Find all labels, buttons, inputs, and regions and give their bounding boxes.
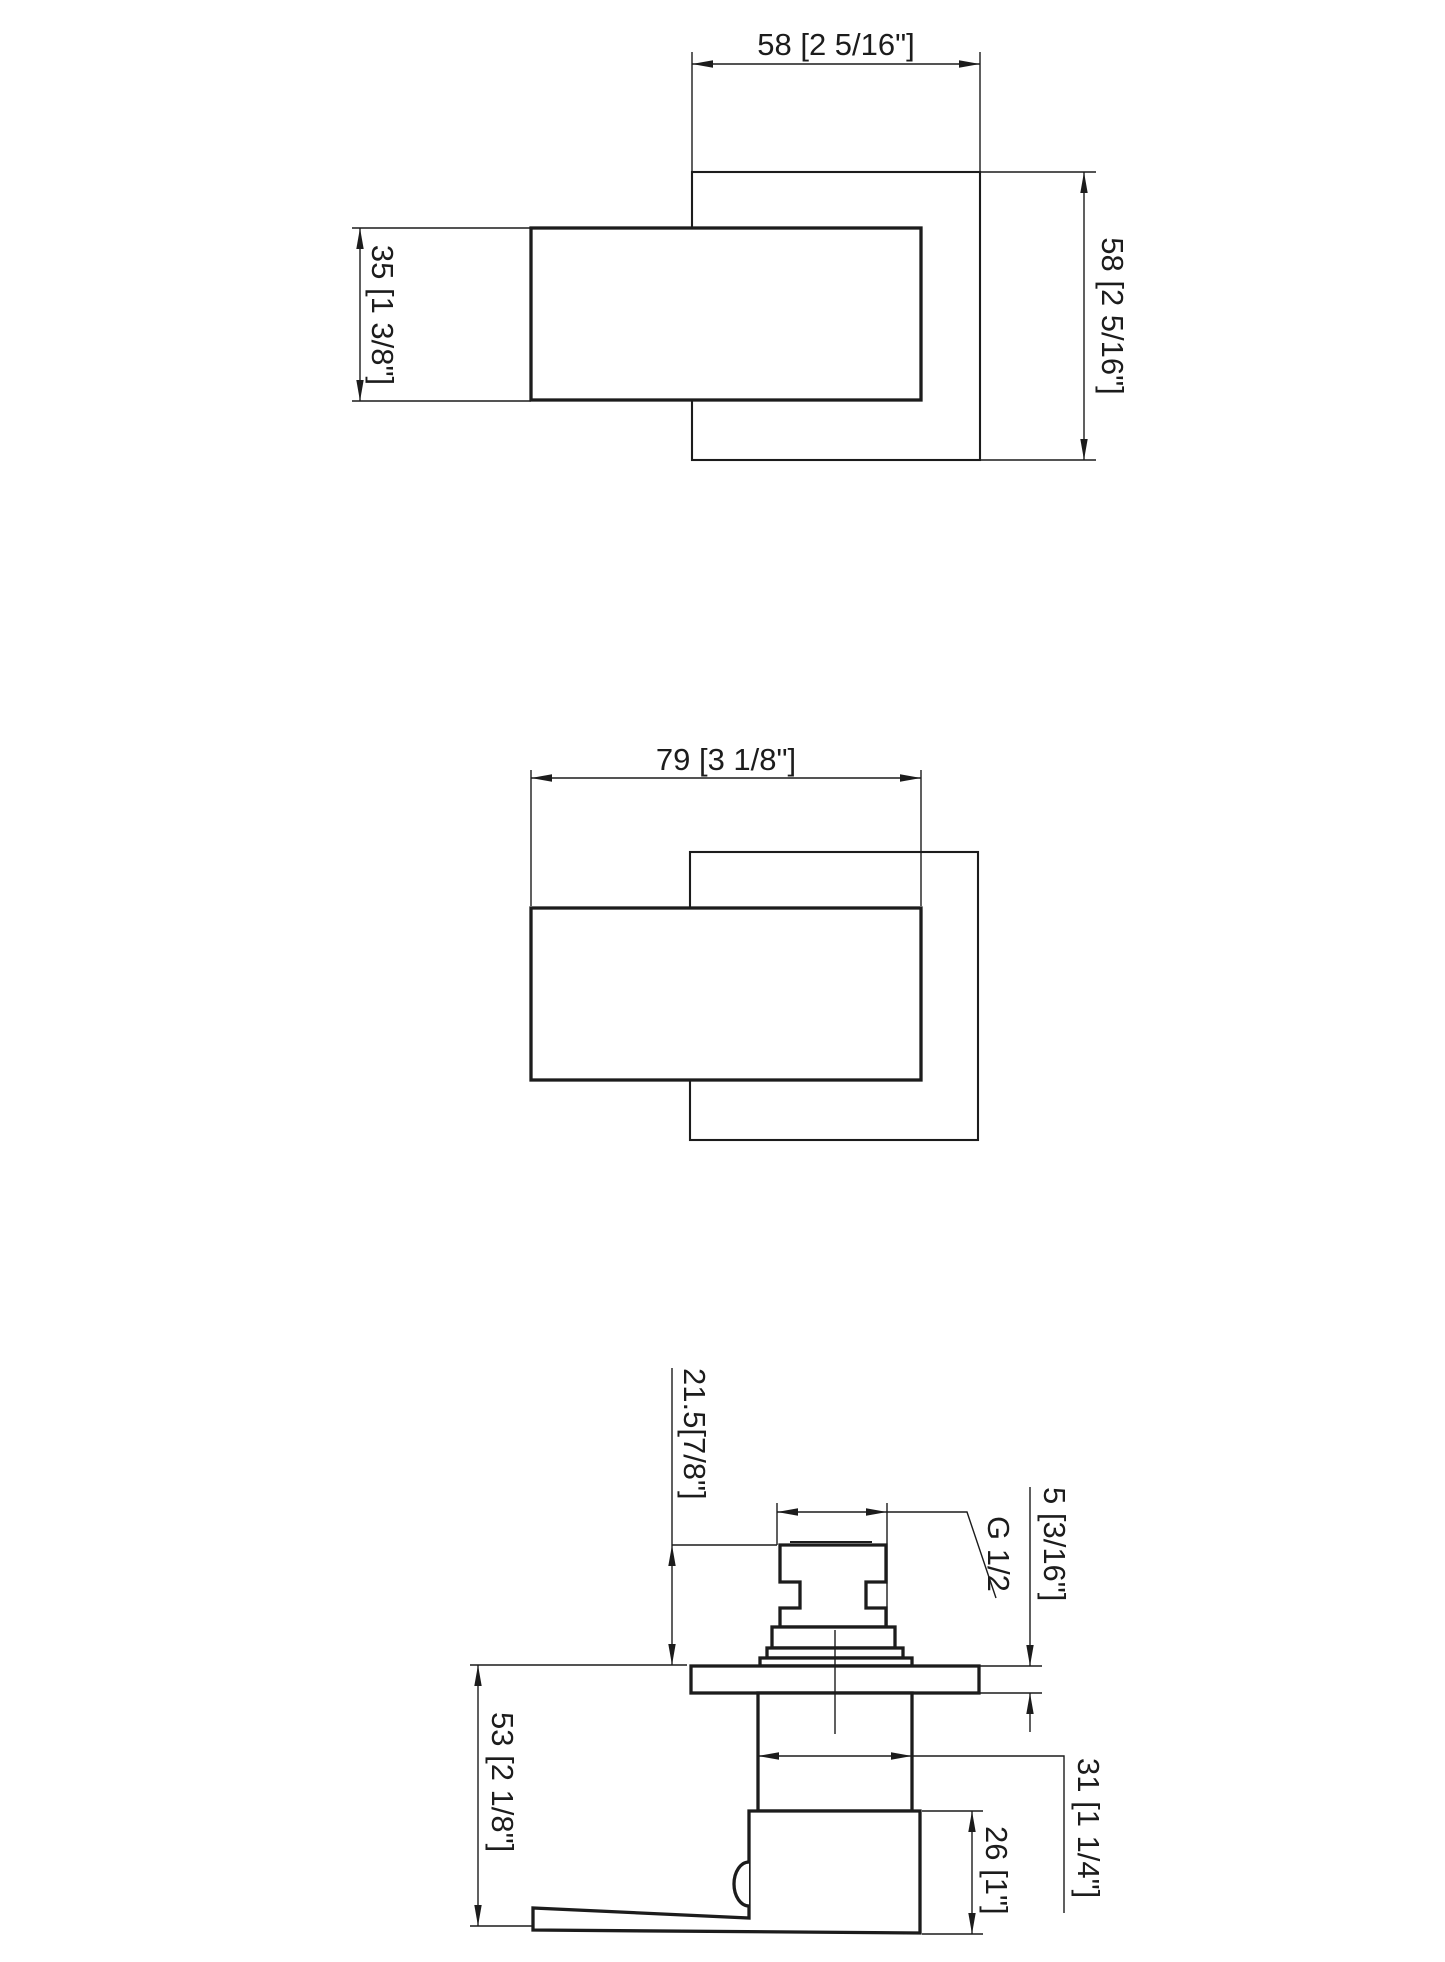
dim-handle-height: 35 [1 3/8"] [352, 228, 531, 401]
valve-trim-drawing: 58 [2 5/16"] 58 [2 5/16"] 35 [1 3/8"] 79 [0, 0, 1445, 1962]
dim-handle-depth: 26 [1"] [922, 1811, 1014, 1934]
dim-plate-thickness-label: 5 [3/16"] [1037, 1487, 1072, 1601]
dim-handle-height-label: 35 [1 3/8"] [365, 245, 400, 385]
dim-plate-height-label: 58 [2 5/16"] [1095, 237, 1130, 395]
dim-handle-depth-label: 26 [1"] [979, 1826, 1014, 1915]
dim-cartridge-height-label: 21.5[7/8"] [677, 1368, 712, 1500]
dim-plate-width-label: 58 [2 5/16"] [757, 27, 915, 62]
handle-outline [531, 228, 921, 400]
dim-plate-width: 58 [2 5/16"] [692, 27, 980, 172]
dim-valve-body-width-label: 31 [1 1/4"] [1071, 1758, 1106, 1898]
technical-drawing-sheet: 58 [2 5/16"] 58 [2 5/16"] 35 [1 3/8"] 79 [0, 0, 1445, 1962]
front-view: 79 [3 1/8"] [531, 742, 978, 1140]
top-view: 58 [2 5/16"] 58 [2 5/16"] 35 [1 3/8"] [352, 27, 1130, 460]
lever-handle-outline [533, 1811, 920, 1933]
dim-total-depth: 53 [2 1/8"] [470, 1665, 687, 1926]
cartridge-outline [780, 1545, 886, 1627]
dim-handle-width-label: 79 [3 1/8"] [656, 742, 796, 777]
dim-handle-width: 79 [3 1/8"] [531, 742, 921, 906]
pedestal-collar [772, 1627, 895, 1648]
lever-pivot-dome [734, 1862, 749, 1906]
dim-cartridge-height: 21.5[7/8"] [672, 1368, 777, 1665]
dim-total-depth-label: 53 [2 1/8"] [485, 1712, 520, 1852]
side-view: 21.5[7/8"] G 1/2 5 [3/16"] 53 [2 1/8"] [470, 1368, 1106, 1934]
dim-plate-height: 58 [2 5/16"] [980, 172, 1130, 460]
thread-size-label: G 1/2 [981, 1516, 1016, 1592]
handle-outline [531, 908, 921, 1080]
